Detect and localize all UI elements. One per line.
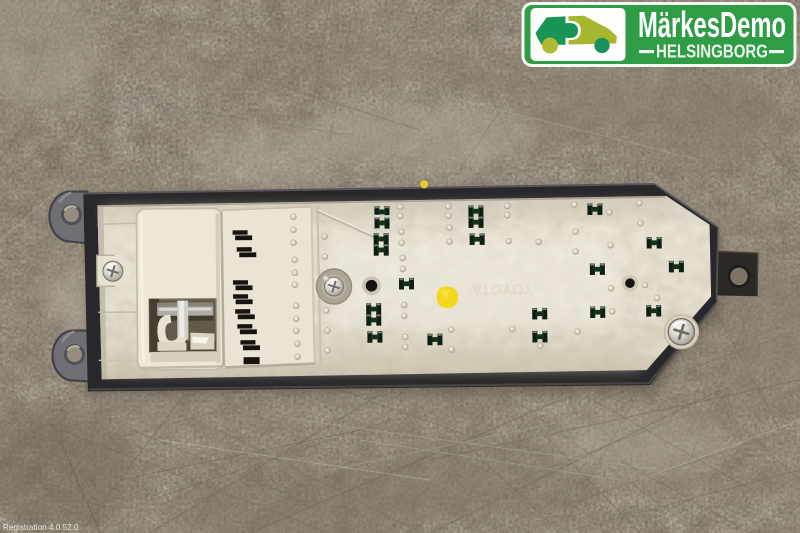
- svg-text:TOYOTA: TOYOTA: [471, 280, 532, 297]
- svg-text:Registration 4.0.52.0: Registration 4.0.52.0: [3, 523, 79, 532]
- svg-text:MärkesDemo: MärkesDemo: [638, 4, 786, 45]
- svg-text:HELSINGBORG: HELSINGBORG: [656, 41, 768, 62]
